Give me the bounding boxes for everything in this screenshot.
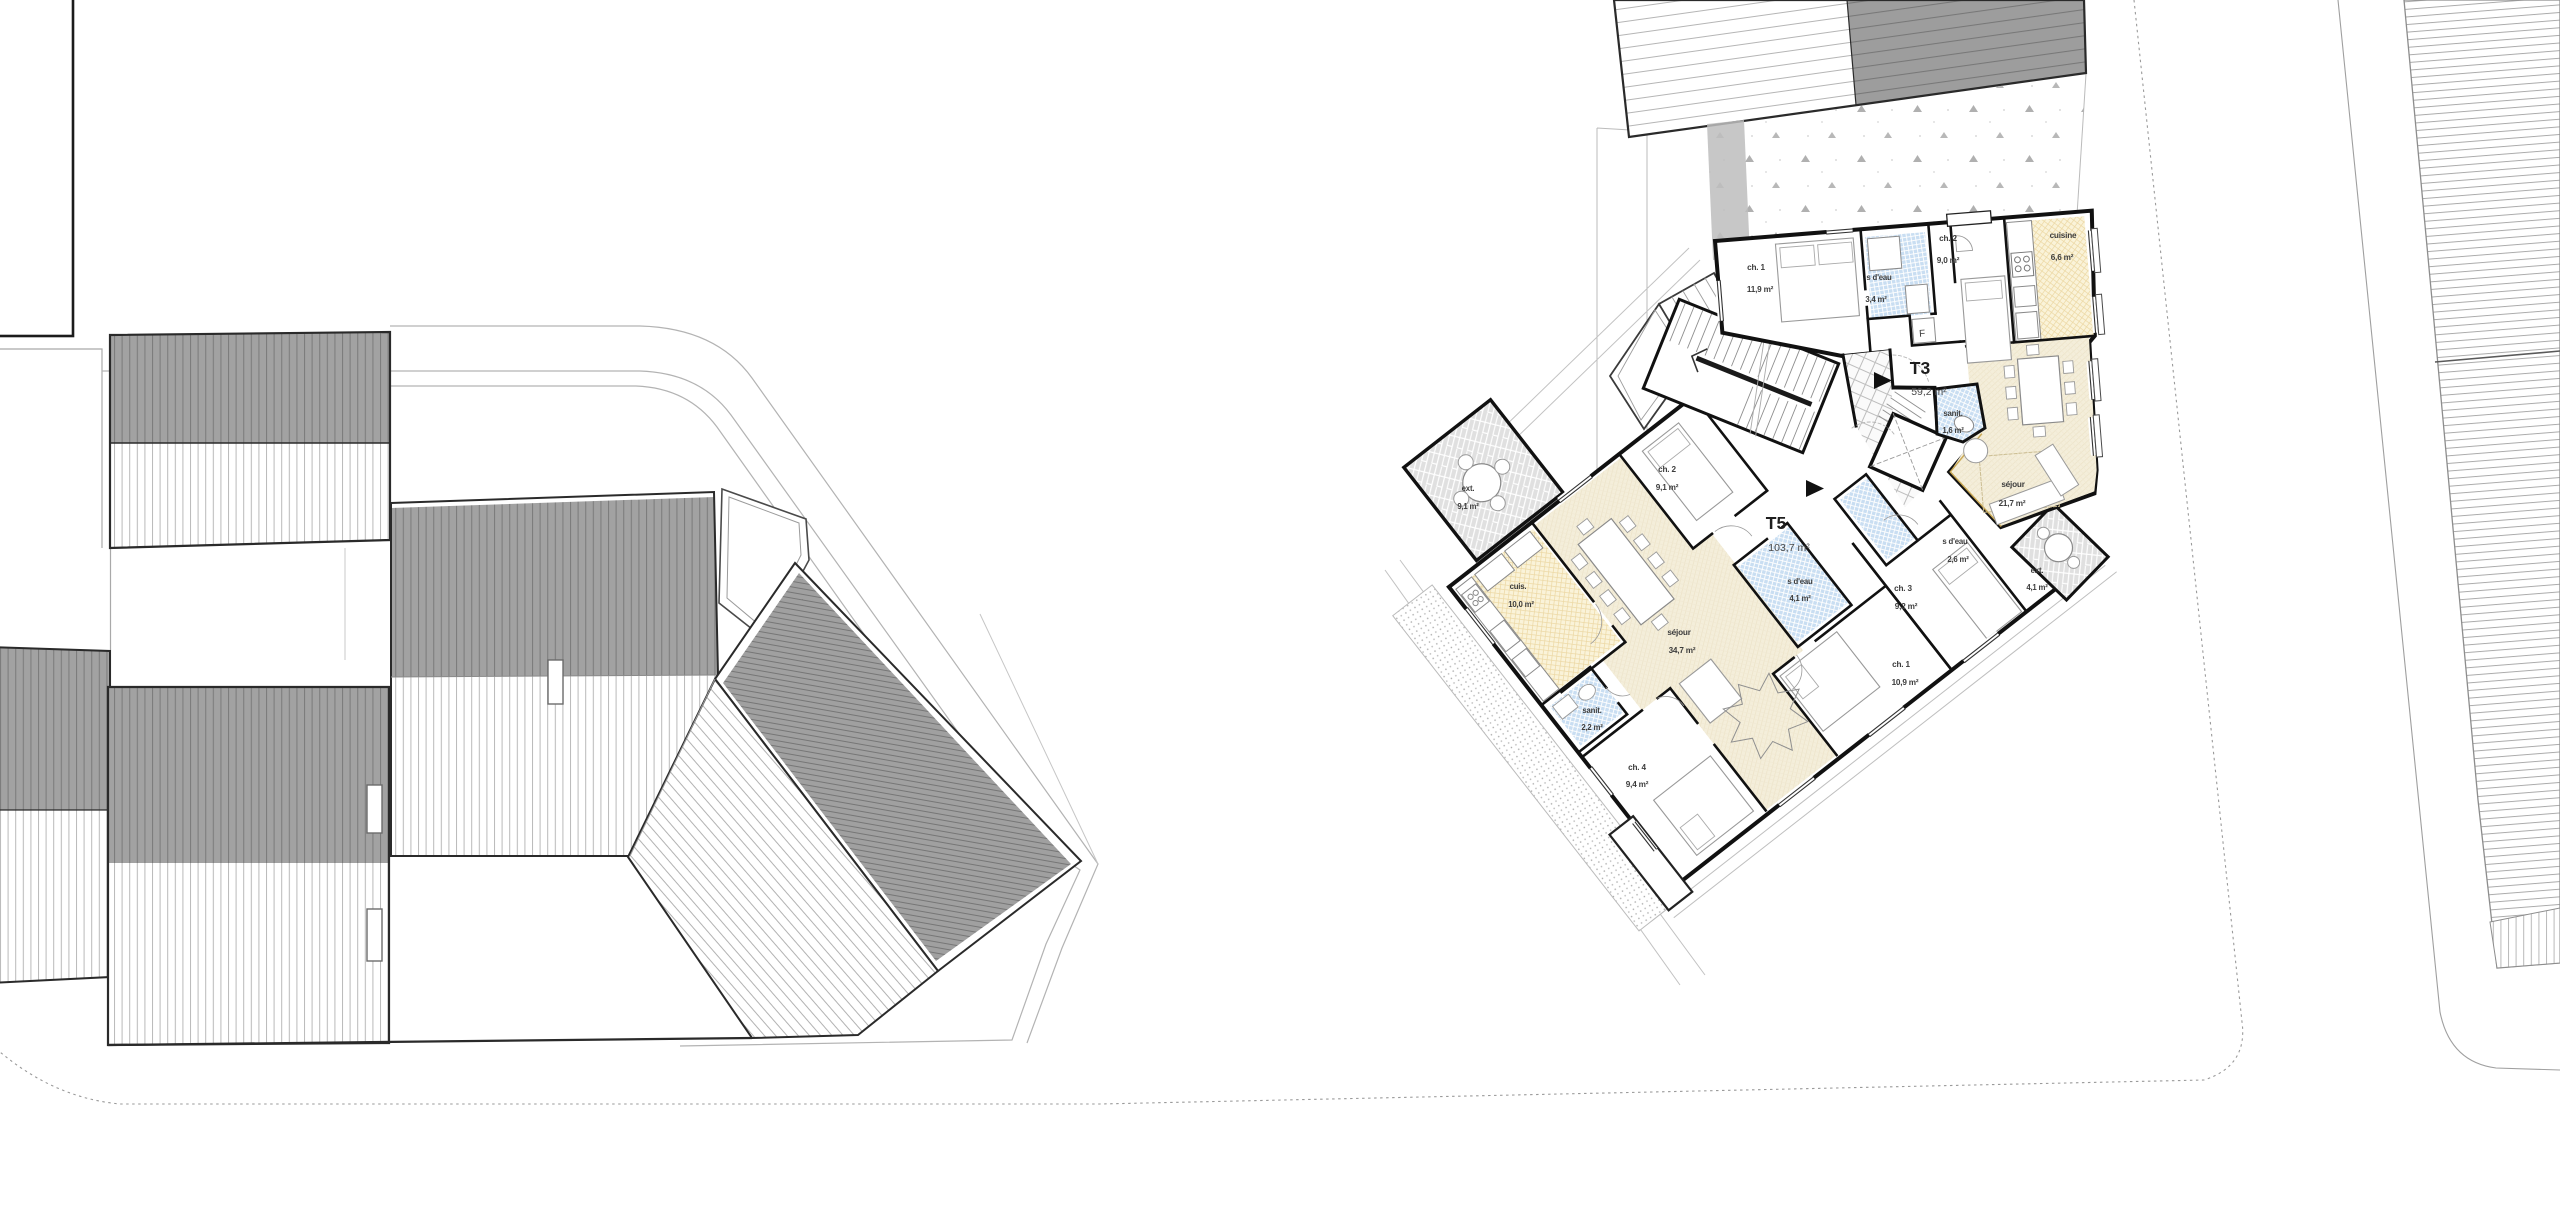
svg-text:9,0 m²: 9,0 m²: [1937, 256, 1960, 265]
svg-text:séjour: séjour: [1667, 628, 1691, 637]
svg-text:F: F: [1919, 328, 1926, 339]
svg-text:ext.: ext.: [1462, 484, 1475, 493]
svg-text:6,6 m²: 6,6 m²: [2051, 253, 2074, 262]
svg-text:34,7 m²: 34,7 m²: [1669, 646, 1696, 655]
svg-text:ch. 2: ch. 2: [1658, 465, 1676, 474]
svg-text:10,0 m²: 10,0 m²: [1508, 600, 1534, 609]
svg-text:sanit.: sanit.: [1943, 409, 1962, 418]
svg-text:T3: T3: [1910, 358, 1931, 378]
svg-text:ch. 4: ch. 4: [1628, 763, 1646, 772]
svg-text:9,2 m²: 9,2 m²: [1895, 602, 1918, 611]
svg-text:ch. 2: ch. 2: [1939, 234, 1957, 243]
svg-text:1,6 m²: 1,6 m²: [1942, 426, 1964, 435]
svg-text:T5: T5: [1766, 513, 1787, 533]
svg-text:2,2 m²: 2,2 m²: [1581, 723, 1603, 732]
svg-text:3,4 m²: 3,4 m²: [1865, 295, 1887, 304]
svg-text:cuis.: cuis.: [1510, 582, 1527, 591]
svg-text:9,1 m²: 9,1 m²: [1656, 483, 1679, 492]
svg-text:9,4 m²: 9,4 m²: [1626, 780, 1649, 789]
svg-text:cuisine: cuisine: [2050, 231, 2077, 240]
svg-text:s d'eau: s d'eau: [1866, 273, 1892, 282]
svg-text:4,1 m²: 4,1 m²: [2026, 583, 2048, 592]
svg-text:21,7 m²: 21,7 m²: [1999, 499, 2026, 508]
svg-text:ch. 1: ch. 1: [1747, 263, 1765, 272]
svg-text:séjour: séjour: [2001, 480, 2025, 489]
svg-text:11,9 m²: 11,9 m²: [1747, 285, 1774, 294]
svg-text:ext.: ext.: [2031, 566, 2044, 575]
svg-text:ch. 3: ch. 3: [1894, 584, 1912, 593]
svg-text:sanit.: sanit.: [1582, 706, 1601, 715]
svg-text:59,2 m²: 59,2 m²: [1911, 386, 1947, 398]
svg-text:4,1 m²: 4,1 m²: [1789, 594, 1811, 603]
svg-text:103,7 m²: 103,7 m²: [1768, 542, 1810, 554]
svg-text:ch. 1: ch. 1: [1892, 660, 1910, 669]
svg-text:10,9 m²: 10,9 m²: [1892, 678, 1919, 687]
svg-text:s d'eau: s d'eau: [1942, 537, 1968, 546]
svg-text:2,6 m²: 2,6 m²: [1947, 555, 1969, 564]
svg-text:9,1 m²: 9,1 m²: [1457, 502, 1479, 511]
svg-text:s d'eau: s d'eau: [1787, 577, 1813, 586]
